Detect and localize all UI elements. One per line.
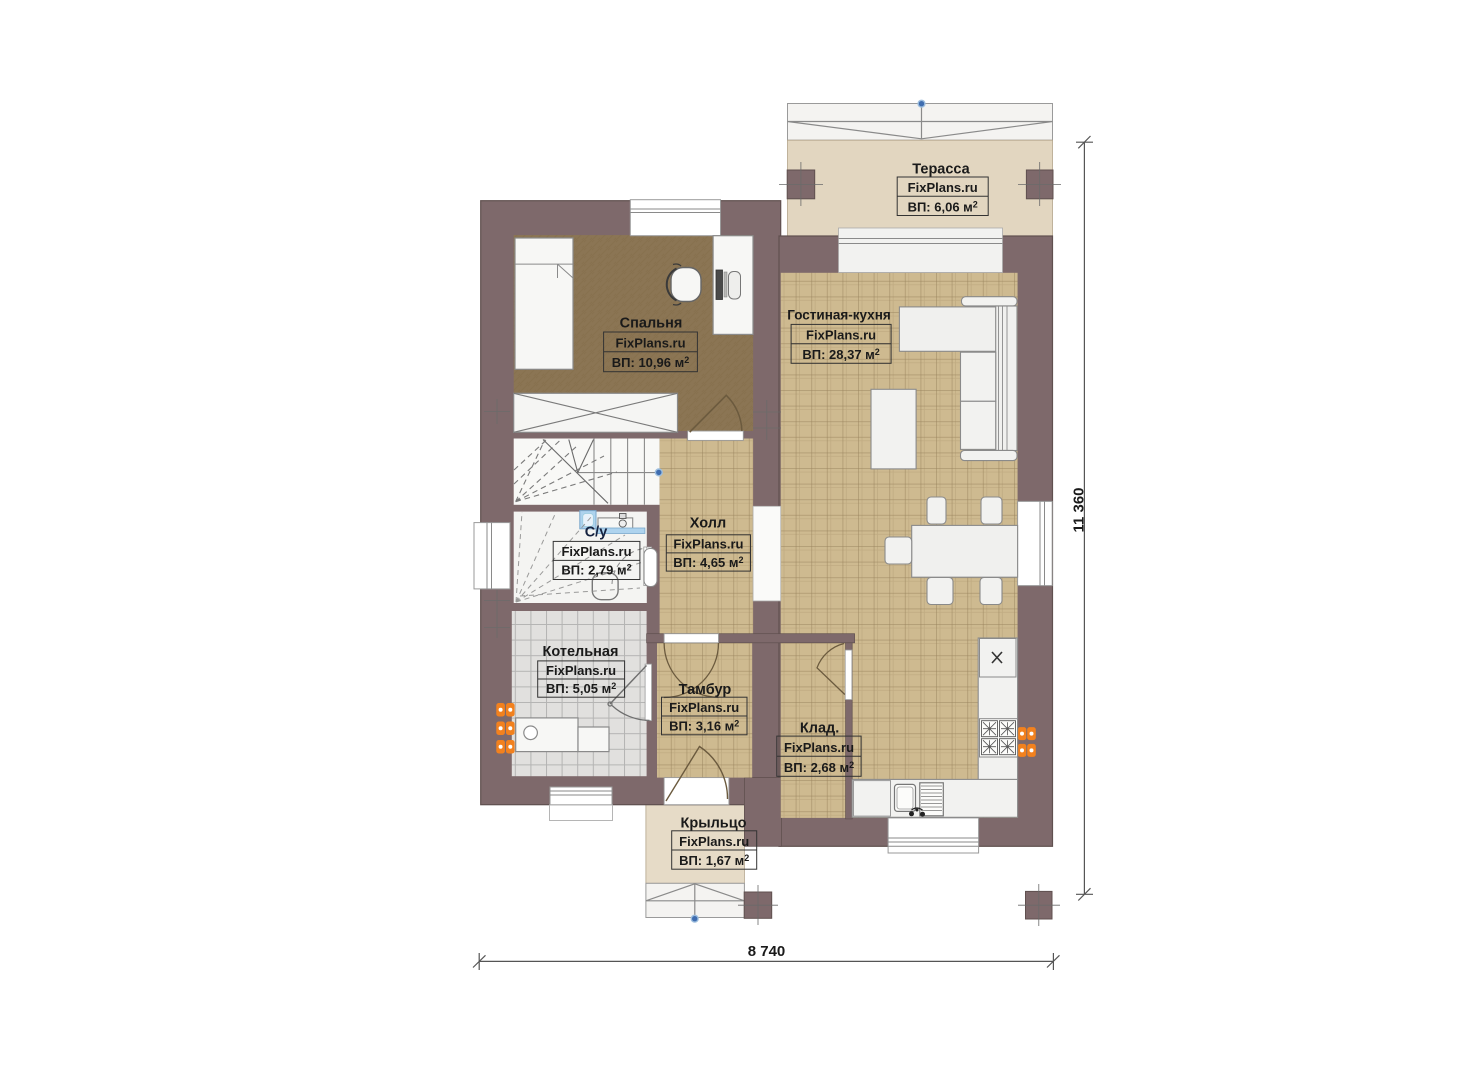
svg-text:ВП: 3,16 м2: ВП: 3,16 м2 [669, 718, 739, 733]
svg-text:ВП: 4,65 м2: ВП: 4,65 м2 [673, 555, 743, 570]
svg-text:FixPlans.ru: FixPlans.ru [615, 335, 685, 350]
svg-text:FixPlans.ru: FixPlans.ru [784, 740, 854, 755]
svg-text:Котельная: Котельная [543, 644, 619, 660]
svg-text:ВП: 5,05 м2: ВП: 5,05 м2 [546, 681, 616, 696]
svg-text:Тамбур: Тамбур [679, 682, 732, 698]
svg-text:ВП: 28,37 м2: ВП: 28,37 м2 [802, 347, 879, 362]
svg-text:Терасса: Терасса [912, 162, 970, 178]
svg-text:Клад.: Клад. [800, 721, 839, 737]
svg-text:ВП: 6,06 м2: ВП: 6,06 м2 [908, 199, 978, 214]
svg-text:Холл: Холл [690, 516, 726, 532]
svg-text:FixPlans.ru: FixPlans.ru [546, 663, 616, 678]
svg-text:11 360: 11 360 [1071, 487, 1088, 532]
svg-text:FixPlans.ru: FixPlans.ru [561, 544, 631, 559]
svg-text:С/у: С/у [585, 525, 608, 541]
svg-text:ВП: 1,67 м2: ВП: 1,67 м2 [679, 853, 749, 868]
svg-text:ВП: 2,79 м2: ВП: 2,79 м2 [561, 563, 631, 578]
svg-text:Спальня: Спальня [620, 316, 683, 332]
svg-text:ВП: 2,68 м2: ВП: 2,68 м2 [784, 760, 854, 775]
svg-text:FixPlans.ru: FixPlans.ru [673, 537, 743, 552]
svg-text:ВП: 10,96 м2: ВП: 10,96 м2 [612, 355, 689, 370]
svg-text:FixPlans.ru: FixPlans.ru [679, 834, 749, 849]
svg-text:8 740: 8 740 [748, 943, 786, 960]
svg-text:FixPlans.ru: FixPlans.ru [908, 180, 978, 195]
svg-text:Гостиная-кухня: Гостиная-кухня [787, 308, 890, 323]
svg-text:Крыльцо: Крыльцо [681, 816, 747, 832]
svg-text:FixPlans.ru: FixPlans.ru [806, 327, 876, 342]
svg-text:FixPlans.ru: FixPlans.ru [669, 700, 739, 715]
